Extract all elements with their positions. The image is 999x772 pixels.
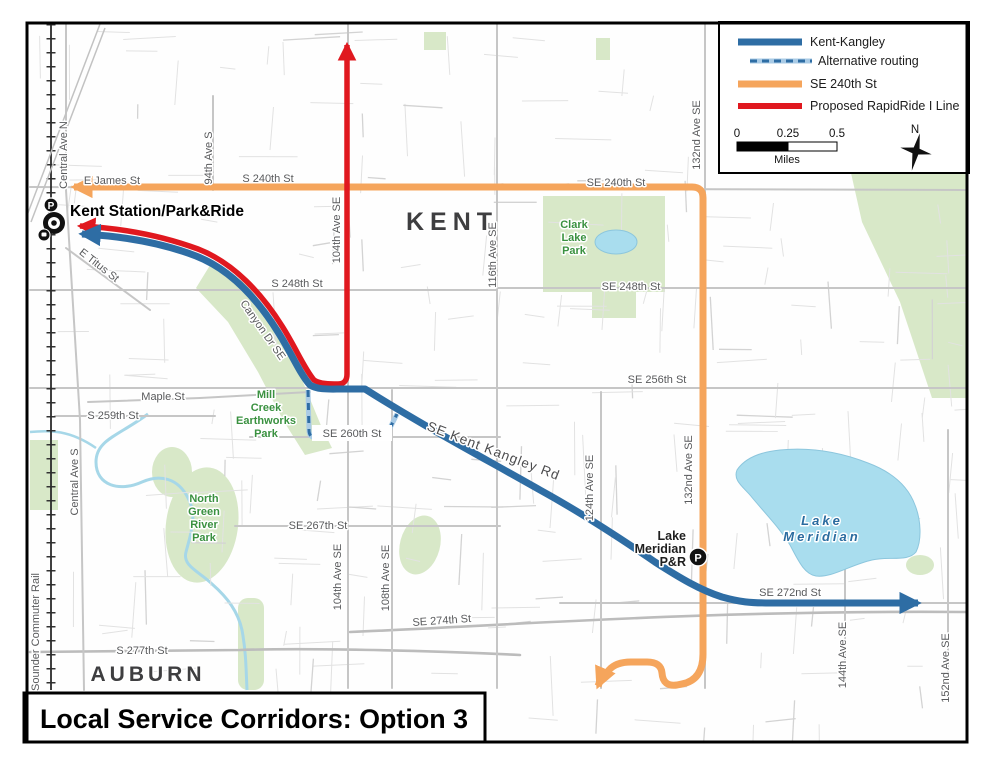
- map-label: P&R: [660, 555, 686, 569]
- scale-bar-white: [788, 142, 837, 151]
- lake-meridian-pr-icon: P: [689, 548, 707, 566]
- map-label: Mill: [257, 389, 275, 401]
- scale-tick: 0.25: [777, 128, 799, 140]
- map-label: 108th Ave SE: [380, 545, 392, 611]
- map-label: 144th Ave SE: [837, 622, 849, 688]
- map-label: Green: [188, 506, 220, 518]
- map-label: Clark: [560, 219, 588, 231]
- map-label: Creek: [251, 402, 282, 414]
- map-label: 124th Ave SE: [584, 455, 596, 521]
- legend-label: SE 240th St: [810, 77, 877, 91]
- map-label: AUBURN: [91, 663, 206, 686]
- map-label: Lake: [801, 513, 843, 528]
- map-label: Park: [192, 532, 217, 544]
- map-label: Sounder Commuter Rail: [30, 573, 42, 691]
- map-label: Kent Station/Park&Ride: [70, 203, 244, 220]
- map-label: Earthworks: [236, 415, 296, 427]
- map-label: Meridian: [783, 529, 860, 544]
- map-label: River: [190, 519, 218, 531]
- map-label: SE 256th St: [628, 374, 687, 386]
- map-label: 104th Ave SE: [332, 544, 344, 610]
- map-label: 94th Ave S: [203, 131, 215, 184]
- map-label: S 240th St: [242, 173, 293, 185]
- compass-n-label: N: [911, 124, 919, 136]
- map-label: Central Ave N: [58, 121, 70, 189]
- map-label: S 248th St: [271, 278, 322, 290]
- map-label: Central Ave S: [69, 448, 81, 515]
- service-corridors-map: E James StS 240th StSE 240th StS 248th S…: [0, 0, 999, 772]
- map-label: E James St: [84, 175, 140, 187]
- parking-icon-letter: P: [694, 553, 701, 565]
- map-label: North: [189, 493, 219, 505]
- map-label: Park: [562, 245, 587, 257]
- scale-tick: 0: [734, 128, 740, 140]
- map-label: Lake: [561, 232, 586, 244]
- clark-lake: [595, 230, 637, 254]
- map-label: Meridian: [635, 542, 686, 556]
- title-box: Local Service Corridors: Option 3: [24, 693, 485, 742]
- map-title: Local Service Corridors: Option 3: [40, 704, 468, 734]
- map-label: 132nd Ave SE: [691, 100, 703, 170]
- map-label: Maple St: [141, 391, 184, 403]
- legend-label: Alternative routing: [818, 54, 919, 68]
- map-label: SE 248th St: [602, 281, 661, 293]
- legend-label: Proposed RapidRide I Line: [810, 99, 959, 113]
- map-label: KENT: [406, 208, 498, 236]
- map-label: Lake: [658, 529, 687, 543]
- scale-tick: 0.5: [829, 128, 845, 140]
- map-label: Park: [254, 428, 279, 440]
- map-label: SE 240th St: [587, 177, 646, 189]
- scale-unit: Miles: [774, 154, 800, 166]
- map-label: SE 267th St: [289, 520, 348, 532]
- map-label: S 259th St: [87, 410, 138, 422]
- transit-icon-glyph: [42, 233, 47, 237]
- map-label: S 277th St: [116, 645, 167, 657]
- map-label: 152nd Ave SE: [940, 633, 952, 703]
- map-document: E James StS 240th StSE 240th StS 248th S…: [0, 0, 999, 772]
- scale-bar-black: [737, 142, 788, 151]
- map-label: SE 260th St: [323, 428, 382, 440]
- station-ring-dot: [51, 220, 57, 226]
- map-label: 104th Ave SE: [331, 197, 343, 263]
- legend: Kent-Kangley Alternative routing SE 240t…: [719, 22, 969, 174]
- map-label: 132nd Ave SE: [683, 435, 695, 505]
- legend-label: Kent-Kangley: [810, 35, 886, 49]
- parking-icon-letter: P: [48, 201, 55, 212]
- map-label: SE 272nd St: [759, 587, 821, 599]
